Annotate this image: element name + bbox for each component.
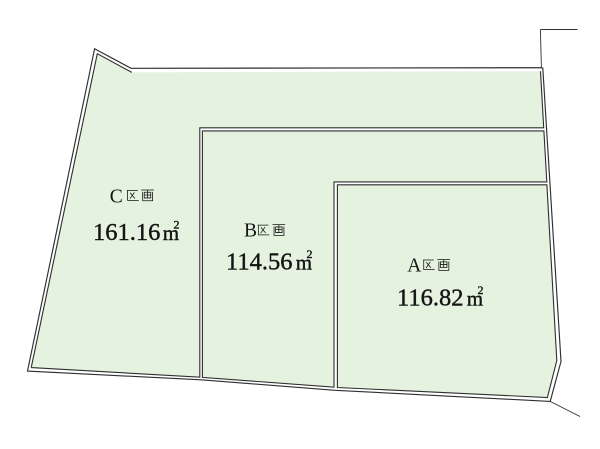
svg-text:C: C <box>110 186 123 207</box>
svg-text:114.56: 114.56 <box>226 249 292 276</box>
svg-text:2: 2 <box>174 217 180 231</box>
svg-text:2: 2 <box>478 283 484 297</box>
svg-text:B: B <box>244 221 257 242</box>
svg-text:A: A <box>407 255 421 276</box>
svg-text:116.82: 116.82 <box>397 285 463 312</box>
svg-text:161.16: 161.16 <box>93 219 160 246</box>
svg-text:2: 2 <box>307 247 313 261</box>
